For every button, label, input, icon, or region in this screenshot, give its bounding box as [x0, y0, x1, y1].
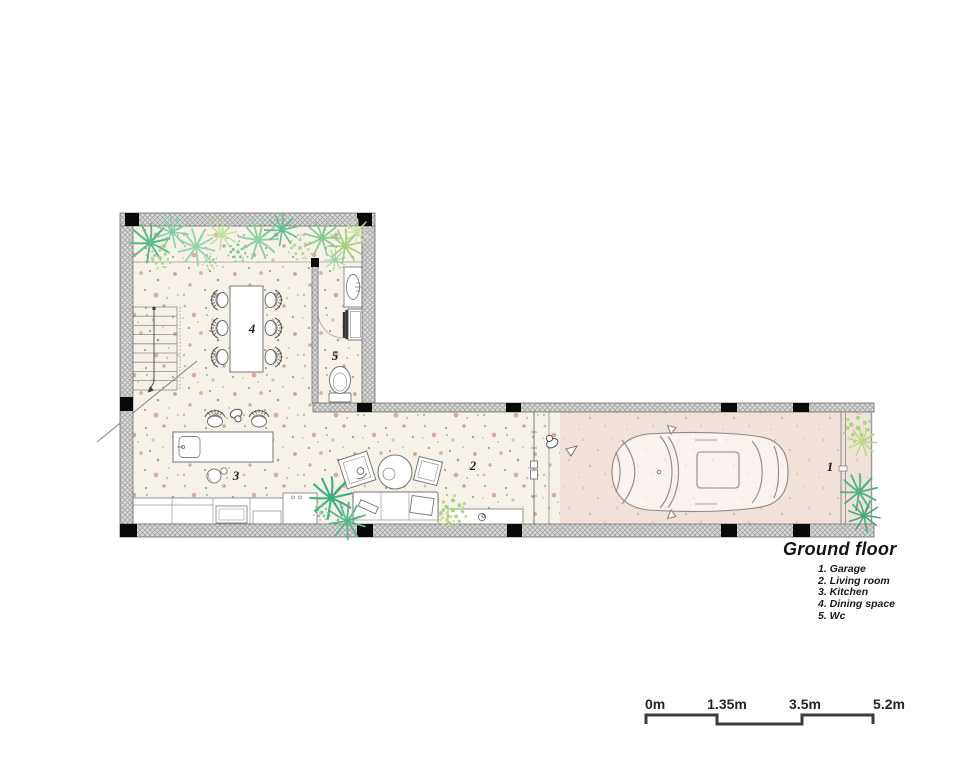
toilet-icon — [329, 367, 351, 403]
car-top-view-icon — [612, 426, 788, 519]
legend: 1. Garage 2. Living room 3. Kitchen 4. D… — [818, 564, 895, 623]
door-hardware — [531, 461, 538, 468]
wall-top — [120, 213, 375, 226]
legend-item: 1. Garage — [818, 564, 895, 576]
scale-tick-3: 5.2m — [873, 696, 905, 712]
wall-right-block — [362, 226, 375, 403]
dining-table-set — [210, 286, 283, 372]
side-table — [413, 456, 442, 485]
sofa — [353, 492, 438, 525]
oven — [216, 506, 247, 523]
wall-bottom — [120, 524, 874, 537]
kitchen-counter — [133, 493, 317, 524]
room-label-wc: 5 — [332, 348, 339, 364]
scale-bar — [646, 715, 873, 724]
room-label-living-room: 2 — [470, 458, 477, 474]
wall-left — [120, 226, 133, 537]
floor-plan-canvas: 1 2 3 4 5 Ground floor 1. Garage 2. Livi… — [0, 0, 972, 768]
scale-tick-2: 3.5m — [789, 696, 821, 712]
room-label-garage: 1 — [827, 459, 834, 475]
legend-item: 5. Wc — [818, 611, 895, 623]
plan-title: Ground floor — [783, 539, 897, 560]
room-label-kitchen: 3 — [233, 468, 240, 484]
floor-plan-drawing — [0, 0, 972, 768]
dining-table — [230, 286, 263, 372]
wall-wc-partition — [312, 262, 318, 403]
room-label-dining-space: 4 — [249, 321, 256, 337]
floor-bowl — [207, 469, 221, 483]
scale-tick-1: 1.35m — [707, 696, 747, 712]
sofa-cushion — [410, 496, 434, 516]
scale-tick-0: 0m — [645, 696, 665, 712]
wall-wing-top — [313, 403, 874, 412]
